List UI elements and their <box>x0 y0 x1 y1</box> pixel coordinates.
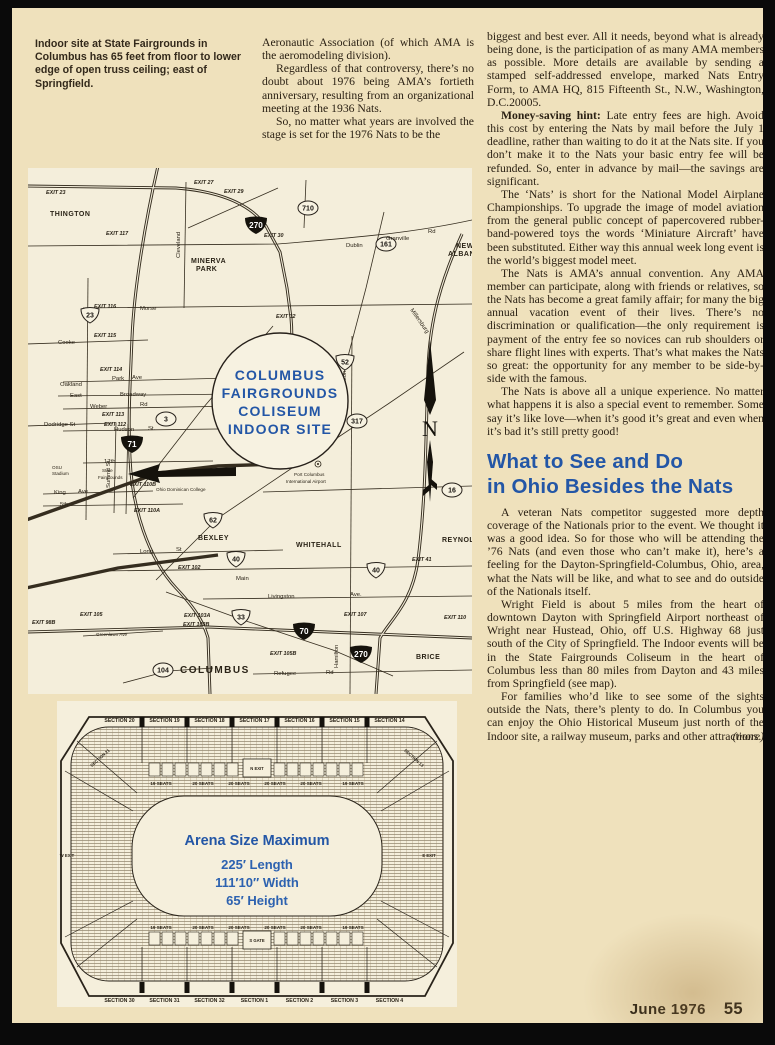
map-label: Summit St <box>106 460 112 488</box>
interstate-shield-icon: 270 <box>245 217 267 235</box>
site-circle-line4: INDOOR SITE <box>228 421 332 437</box>
map-exit-label: EXIT 115 <box>94 333 117 339</box>
map-exit-label: EXIT 30 <box>264 233 283 239</box>
map-label: Ave <box>132 375 143 381</box>
map-label: Refugee <box>274 671 297 677</box>
intro-column: Aeronautic Association (of which AMA is … <box>262 36 474 141</box>
map-label: St. <box>148 426 156 432</box>
map-exit-label: EXIT 105 <box>80 612 103 618</box>
arena-section-label: SECTION 4 <box>376 998 403 1004</box>
map-exit-label: EXIT 116 <box>94 304 117 310</box>
north-arrow-label: N <box>422 416 438 441</box>
arena-section-label: SECTION 2 <box>286 998 313 1004</box>
arena-section-label: SECTION 20 <box>104 718 134 724</box>
site-circle-line1: COLUMBUS <box>235 367 325 383</box>
paragraph: So, no matter what years are involved th… <box>262 115 474 141</box>
arena-section-label: SECTION 30 <box>104 998 134 1004</box>
map-exit-label: EXIT 27 <box>194 180 214 186</box>
map-label: Ave. <box>350 592 362 598</box>
interstate-shield-icon: 270 <box>350 646 372 664</box>
map-label: OSU <box>52 465 62 470</box>
map-label: Main <box>236 576 249 582</box>
map-label: PARK <box>196 266 217 273</box>
arena-dim-height: 65′ Height <box>226 893 288 908</box>
map-label: Dublin <box>346 243 363 249</box>
state-route-shield-icon: 317 <box>347 414 367 428</box>
map-label: REYNOLDS <box>442 537 472 544</box>
map-label: BRICE <box>416 654 440 661</box>
shield-number: 16 <box>448 488 456 495</box>
map-label: THINGTON <box>50 211 90 218</box>
arena-section-label: SECTION 32 <box>194 998 224 1004</box>
interstate-shield-icon: 71 <box>121 436 143 454</box>
map-label: Ave <box>78 489 89 495</box>
right-column-bottom: A veteran Nats competitor suggested more… <box>487 506 763 743</box>
shield-number: 71 <box>127 440 137 449</box>
arena-section-label: SECTION 14 <box>374 718 404 724</box>
map-label: Oakland <box>60 382 82 388</box>
state-route-shield-icon: 16 <box>442 483 462 497</box>
columbus-map: Port Columbus International Airport Stat… <box>28 168 472 694</box>
paragraph: The Nats is AMA’s annual convention. Any… <box>487 267 763 385</box>
arena-seat-count: 19 SEATS <box>150 925 171 930</box>
map-label: 5th <box>60 502 68 508</box>
shield-number: 40 <box>372 568 380 575</box>
arena-gate-label: N EXIT <box>250 766 264 771</box>
arena-exit-label: W EXIT <box>60 853 75 858</box>
section-heading: What to See and Do in Ohio Besides the N… <box>487 449 763 499</box>
map-exit-label: EXIT 114 <box>100 367 122 373</box>
arena-section-label: SECTION 3 <box>331 998 358 1004</box>
map-exit-label: EXIT 32 <box>276 314 295 320</box>
map-label: Rd <box>326 670 334 676</box>
arena-seat-count: 20 SEATS <box>264 781 285 786</box>
arena-canvas: SECTION 20SECTION 19SECTION 18SECTION 17… <box>57 701 457 1007</box>
shield-number: 52 <box>341 360 349 367</box>
paragraph: Money-saving hint: Late entry fees are h… <box>487 109 763 188</box>
airport-label-2: International Airport <box>286 479 327 484</box>
map-exit-label: EXIT 105B <box>270 651 296 657</box>
map-exit-label: EXIT 29 <box>224 189 243 195</box>
site-circle <box>212 333 348 469</box>
shield-number: 70 <box>299 627 309 636</box>
arena-title: Arena Size Maximum <box>184 833 329 849</box>
paragraph: Wright Field is about 5 miles from the h… <box>487 598 763 690</box>
arena-section-label: SECTION 17 <box>239 718 269 724</box>
state-route-shield-icon: 104 <box>153 663 173 677</box>
more-label: (more) <box>719 730 763 743</box>
map-label: MINERVA <box>191 258 226 265</box>
site-circle-line3: COLISEUM <box>238 403 322 419</box>
map-exit-label: EXIT 41 <box>412 557 431 563</box>
airport-label-1: Port Columbus <box>294 472 325 477</box>
map-label: Weber <box>90 404 107 410</box>
map-label: Broadway <box>120 392 146 398</box>
map-label: Millersburg <box>408 308 429 335</box>
map-label: Morse <box>140 306 157 312</box>
shield-number: 317 <box>351 419 363 426</box>
arena-dim-length: 225′ Length <box>221 857 293 872</box>
state-route-shield-icon: 710 <box>298 201 318 215</box>
map-exit-label: EXIT 23 <box>46 190 65 196</box>
arena-seat-count: 20 SEATS <box>228 925 249 930</box>
section-heading-line2: in Ohio Besides the Nats <box>487 474 763 499</box>
map-label: Cleveland <box>176 232 182 258</box>
map-label: Cooke <box>58 340 76 346</box>
map-label: Greenlawn Ave <box>96 632 128 637</box>
us-route-shield-icon: 62 <box>204 513 222 529</box>
shield-number: 270 <box>249 221 263 230</box>
map-label: Park <box>112 376 124 382</box>
arena-section-label: SECTION 18 <box>194 718 224 724</box>
arena-seat-count: 20 SEATS <box>264 925 285 930</box>
arena-section-label: SECTION 15 <box>329 718 359 724</box>
shield-number: 270 <box>354 650 368 659</box>
map-label: East <box>70 393 82 399</box>
map-label: ALBANY <box>448 251 472 258</box>
paragraph: Aeronautic Association (of which AMA is … <box>262 36 474 62</box>
shield-number: 3 <box>164 417 168 424</box>
arena-seat-count: 20 SEATS <box>228 781 249 786</box>
footer-issue: June 1976 <box>630 1001 706 1018</box>
map-exit-label: EXIT 112 <box>104 422 126 428</box>
right-column: biggest and best ever. All it needs, bey… <box>487 30 763 743</box>
map-label: WHITEHALL <box>296 542 342 549</box>
photo-caption: Indoor site at State Fairgrounds in Colu… <box>35 38 257 91</box>
map-exit-label: EXIT 107 <box>344 612 367 618</box>
map-label: Long <box>140 549 153 555</box>
state-route-shield-icon: 3 <box>156 412 176 426</box>
paragraph: biggest and best ever. All it needs, bey… <box>487 30 763 109</box>
arena-seat-count: 20 SEATS <box>192 781 213 786</box>
arena-seat-count: 20 SEATS <box>192 925 213 930</box>
map-exit-label: EXIT 102 <box>178 565 200 571</box>
map-exit-label: EXIT 103B <box>183 622 209 628</box>
paragraph: The ‘Nats’ is short for the National Mod… <box>487 188 763 267</box>
airport-icon-dot <box>317 463 319 465</box>
map-label: Stadium <box>52 471 69 476</box>
map-exit-label: EXIT 113 <box>102 412 124 418</box>
shield-number: 104 <box>157 668 169 675</box>
arena-dim-width: 111′10″ Width <box>215 875 299 890</box>
map-label: King <box>54 490 66 496</box>
paragraph: For families who’d like to see some of t… <box>487 690 763 743</box>
paragraph: A veteran Nats competitor suggested more… <box>487 506 763 598</box>
map-label: Rd <box>140 402 148 408</box>
map-label: Ohio Dominican College <box>156 487 206 492</box>
arena-section-label: SECTION 16 <box>284 718 314 724</box>
map-label: NEW <box>456 243 472 250</box>
shield-number: 23 <box>86 313 94 320</box>
arena-seat-count: 20 SEATS <box>300 781 321 786</box>
map-label: Dodridge St <box>44 422 75 428</box>
map-label: Livingston <box>268 594 295 600</box>
shield-number: 62 <box>209 518 217 525</box>
us-route-shield-icon: 40 <box>367 563 385 579</box>
section-heading-line1: What to See and Do <box>487 449 763 474</box>
map-exit-label: EXIT 110 <box>444 615 466 621</box>
map-canvas: Port Columbus International Airport Stat… <box>28 168 472 694</box>
us-route-shield-icon: 33 <box>232 610 250 626</box>
map-exit-label: EXIT 103A <box>184 613 210 619</box>
page-footer: June 197655 <box>630 1000 743 1019</box>
map-label: St <box>176 547 182 553</box>
arena-exit-label: E EXIT <box>422 853 436 858</box>
map-exit-label: EXIT 117 <box>106 231 129 237</box>
shield-number: 40 <box>232 557 240 564</box>
shield-number: 33 <box>237 615 245 622</box>
right-column-top: biggest and best ever. All it needs, bey… <box>487 30 763 438</box>
map-exit-label: EXIT 110B <box>130 482 156 488</box>
arena-diagram: SECTION 20SECTION 19SECTION 18SECTION 17… <box>57 701 457 1007</box>
map-exit-label: EXIT 110A <box>134 508 160 514</box>
shield-number: 161 <box>380 242 392 249</box>
arena-gate-label: S GATE <box>249 938 264 943</box>
arena-seat-count: 19 SEATS <box>150 781 171 786</box>
arena-section-label: SECTION 1 <box>241 998 268 1004</box>
paragraph: The Nats is above all a unique experienc… <box>487 385 763 438</box>
magazine-page: Indoor site at State Fairgrounds in Colu… <box>12 8 763 1023</box>
map-label: COLUMBUS <box>180 665 250 676</box>
arena-seat-count: 19 SEATS <box>342 781 363 786</box>
map-label: Granville <box>386 236 410 242</box>
paragraph: Regardless of that controversy, there’s … <box>262 62 474 115</box>
arena-seat-count: 19 SEATS <box>342 925 363 930</box>
arena-section-label: SECTION 19 <box>149 718 179 724</box>
map-label: Rd <box>428 229 436 235</box>
map-label: Hamilton <box>334 645 340 668</box>
us-route-shield-icon: 40 <box>227 552 245 568</box>
footer-page-number: 55 <box>724 1000 743 1018</box>
map-label: BEXLEY <box>198 535 229 542</box>
map-exit-label: EXIT 98B <box>32 620 55 626</box>
site-circle-line2: FAIRGROUNDS <box>222 385 339 401</box>
arena-section-label: SECTION 31 <box>149 998 179 1004</box>
shield-number: 710 <box>302 206 314 213</box>
arena-seat-count: 20 SEATS <box>300 925 321 930</box>
